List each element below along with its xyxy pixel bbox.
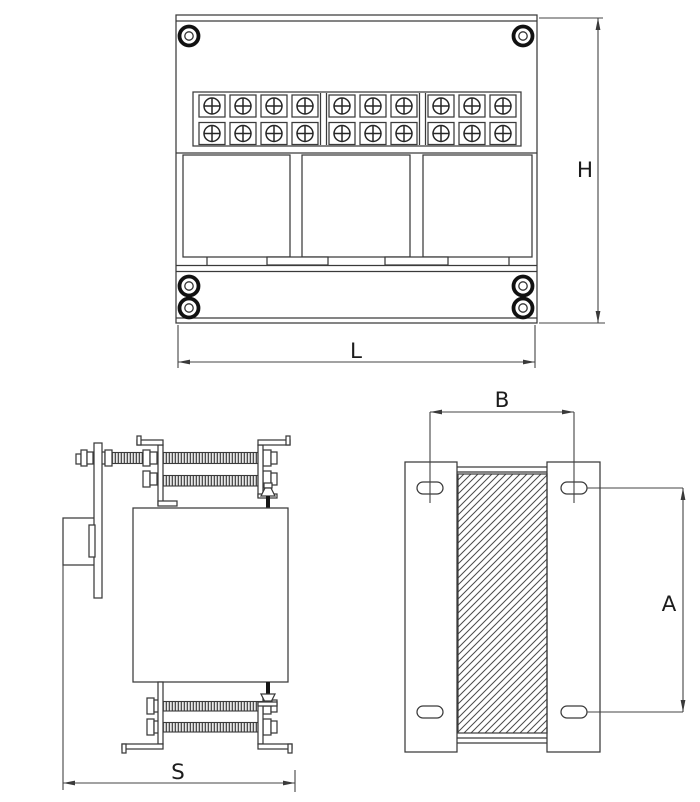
front-view: H L: [176, 15, 605, 368]
drawing-canvas: H L: [0, 0, 700, 802]
dimension-height: H: [539, 18, 605, 323]
coil-body-side: [133, 508, 288, 682]
bolt-shank-icon: [266, 496, 270, 508]
length-label: L: [350, 339, 362, 364]
mounting-slot: [561, 706, 587, 718]
slot-span-label: B: [495, 388, 510, 413]
front-panel-side: [94, 443, 102, 598]
clamp-bracket-top-right: [258, 436, 290, 508]
core-foot-right: [385, 257, 448, 265]
mounting-slot: [417, 706, 443, 718]
tie-rod-top-1: [76, 450, 277, 466]
dimension-slot-pitch: A: [587, 488, 685, 712]
dimension-length: L: [178, 325, 535, 368]
depth-label: S: [171, 760, 185, 785]
coil-core-hatched: [458, 474, 547, 733]
top-view: B A: [405, 388, 685, 752]
core-foot-left: [267, 257, 328, 265]
side-view: S: [63, 436, 295, 792]
coil-center: [302, 155, 410, 257]
transformer-drawing: H L: [0, 0, 700, 802]
bolt-nut-icon: [264, 483, 272, 488]
slot-pitch-label: A: [662, 592, 677, 617]
bolt-shank-icon: [266, 682, 270, 694]
clamp-bracket-bottom-left: [122, 682, 163, 753]
height-label: H: [577, 158, 593, 183]
coil-right: [423, 155, 532, 257]
clamp-bracket-bottom-right: [258, 682, 292, 753]
coil-left: [183, 155, 290, 257]
panel-slot-side: [89, 525, 95, 557]
